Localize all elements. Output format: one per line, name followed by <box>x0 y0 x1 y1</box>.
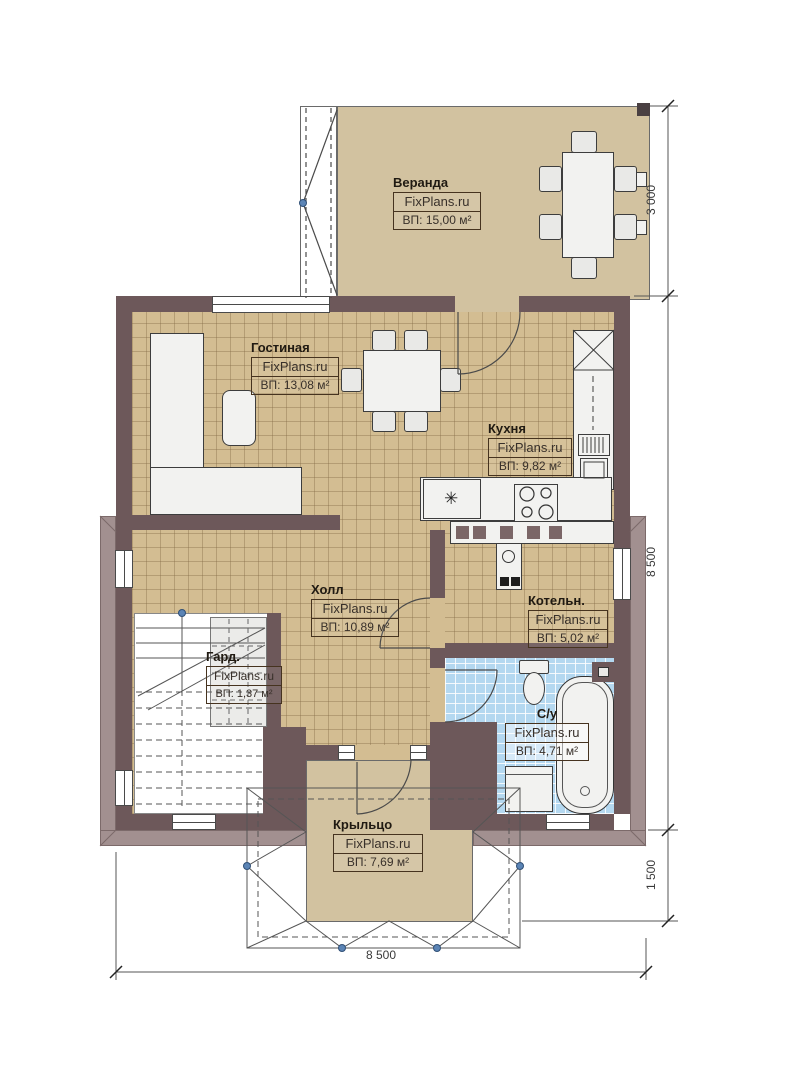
watermark-box: FixPlans.ru <box>251 357 339 377</box>
area-box: ВП: 7,69 м² <box>333 853 423 872</box>
area-box: ВП: 4,71 м² <box>505 742 589 761</box>
dimension-right-top: 3 000 <box>644 160 658 240</box>
stairs-lines <box>136 613 265 806</box>
room-label-bathroom: С/у FixPlans.ru ВП: 4,71 м² <box>505 707 589 761</box>
watermark-box: FixPlans.ru <box>333 834 423 854</box>
room-name: Крыльцо <box>333 818 423 832</box>
room-label-boiler: Котельн. FixPlans.ru ВП: 5,02 м² <box>528 594 608 648</box>
area-box: ВП: 10,89 м² <box>311 618 399 637</box>
room-name: Гард. <box>206 650 282 664</box>
room-name: С/у <box>505 707 589 721</box>
plan-linework <box>0 0 792 1080</box>
stove-burners <box>520 487 553 519</box>
area-box: ВП: 1,37 м² <box>206 685 282 704</box>
room-name: Гостиная <box>251 341 339 355</box>
watermark-box: FixPlans.ru <box>206 666 282 686</box>
area-box: ВП: 5,02 м² <box>528 629 608 648</box>
area-box: ВП: 15,00 м² <box>393 211 481 230</box>
dimension-right-middle: 8 500 <box>644 522 658 602</box>
area-box: ВП: 9,82 м² <box>488 457 572 476</box>
watermark-box: FixPlans.ru <box>311 599 399 619</box>
watermark-box: FixPlans.ru <box>488 438 572 458</box>
area-box: ВП: 13,08 м² <box>251 376 339 395</box>
room-label-veranda: Веранда FixPlans.ru ВП: 15,00 м² <box>393 176 481 230</box>
room-label-kitchen: Кухня FixPlans.ru ВП: 9,82 м² <box>488 422 572 476</box>
watermark-box: FixPlans.ru <box>393 192 481 212</box>
room-name: Котельн. <box>528 594 608 608</box>
floor-plan-canvas: ✳ <box>0 0 792 1080</box>
room-label-hall: Холл FixPlans.ru ВП: 10,89 м² <box>311 583 399 637</box>
room-name: Холл <box>311 583 399 597</box>
room-label-living: Гостиная FixPlans.ru ВП: 13,08 м² <box>251 341 339 395</box>
tall-cabinet-x <box>573 330 614 478</box>
room-label-porch: Крыльцо FixPlans.ru ВП: 7,69 м² <box>333 818 423 872</box>
dimension-right-bottom: 1 500 <box>644 835 658 915</box>
watermark-box: FixPlans.ru <box>528 610 608 630</box>
dimension-bottom: 8 500 <box>341 948 421 962</box>
room-label-wardrobe: Гард. FixPlans.ru ВП: 1,37 м² <box>206 650 282 704</box>
room-name: Кухня <box>488 422 572 436</box>
room-name: Веранда <box>393 176 481 190</box>
watermark-box: FixPlans.ru <box>505 723 589 743</box>
